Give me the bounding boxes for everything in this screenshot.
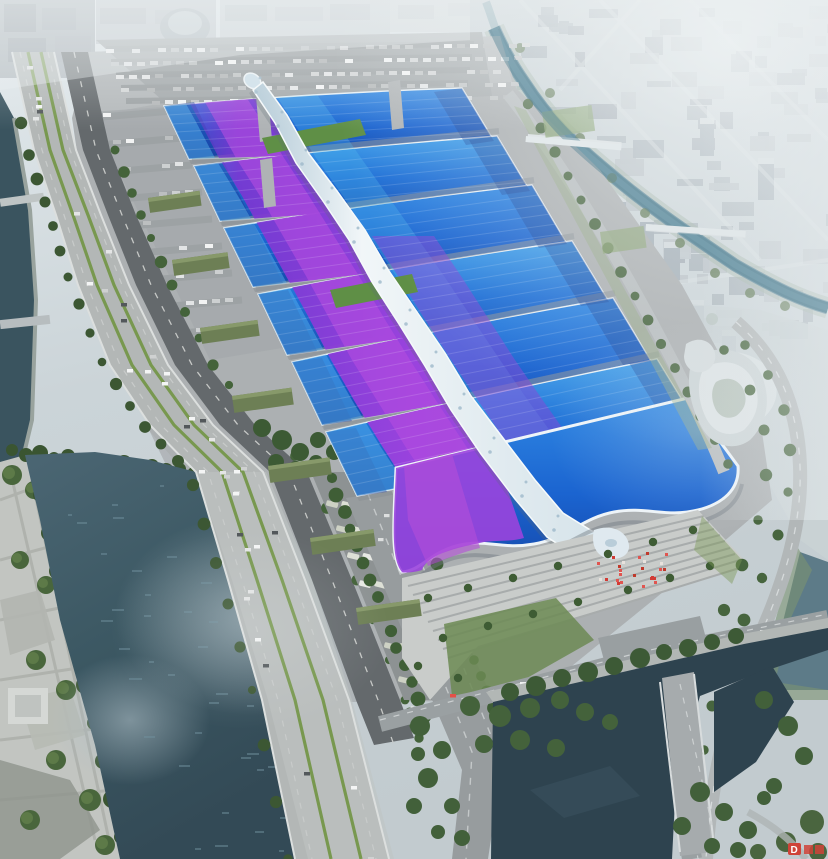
svg-text:D: D [791, 845, 798, 856]
